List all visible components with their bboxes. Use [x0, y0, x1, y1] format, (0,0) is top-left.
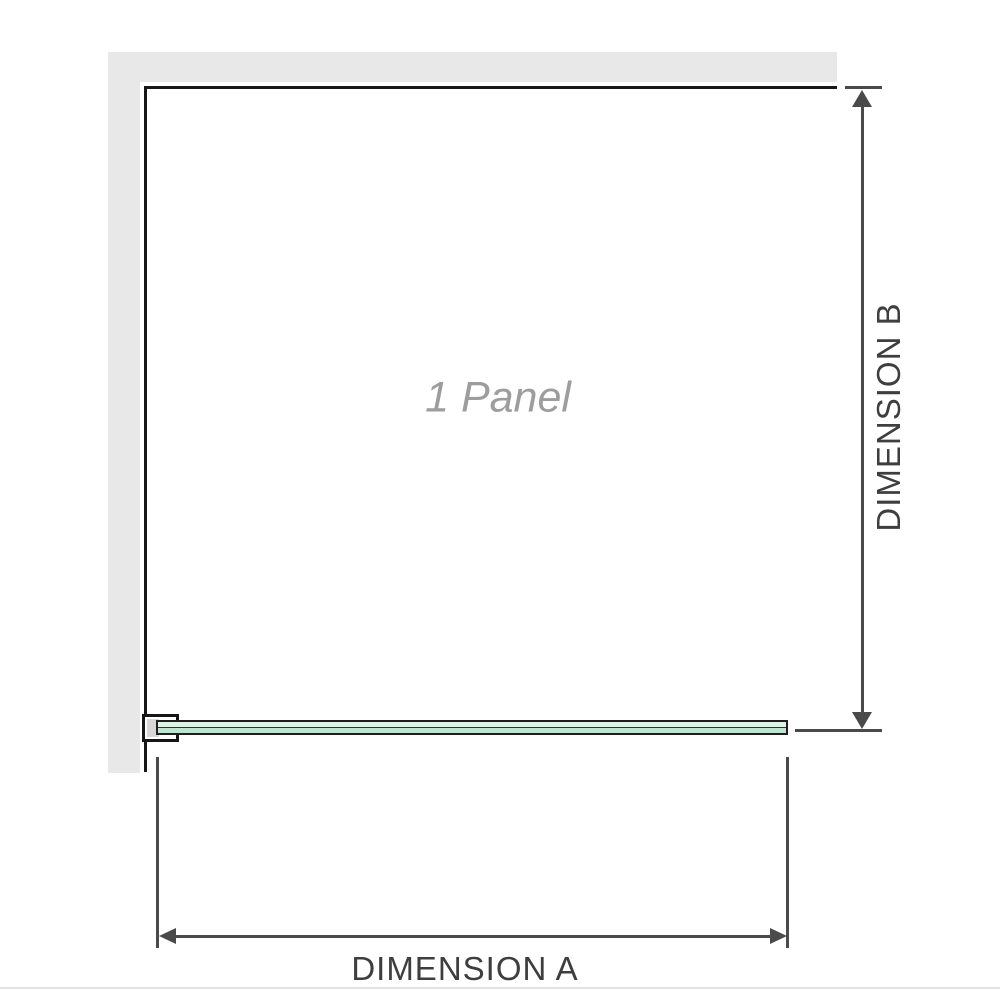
dimension-b-tick-top	[845, 86, 882, 89]
dimension-a-extension-right	[786, 757, 789, 948]
wall-left	[108, 52, 140, 773]
shower-panel-diagram: 1 Panel DIMENSION B DIMENSION A	[0, 0, 1000, 1000]
dimension-a-label: DIMENSION A	[351, 950, 578, 988]
dimension-a-line	[166, 935, 780, 938]
wall-top-inner-line	[144, 86, 837, 89]
wall-left-inner-line	[144, 86, 147, 772]
dimension-b-label: DIMENSION B	[870, 302, 908, 531]
dimension-b-tick-bottom	[795, 729, 882, 732]
dimension-b-line	[861, 104, 864, 716]
dimension-b-arrowhead-up-icon	[852, 90, 872, 107]
dimension-a-extension-left	[156, 757, 159, 948]
bottom-divider-line	[0, 987, 1000, 989]
glass-panel	[156, 720, 788, 735]
glass-panel-edge	[158, 722, 786, 728]
dimension-a-arrowhead-right-icon	[770, 928, 787, 944]
dimension-b-arrowhead-down-icon	[852, 712, 872, 729]
panel-count-label: 1 Panel	[425, 374, 571, 423]
dimension-a-arrowhead-left-icon	[159, 928, 176, 944]
wall-top	[108, 52, 837, 82]
